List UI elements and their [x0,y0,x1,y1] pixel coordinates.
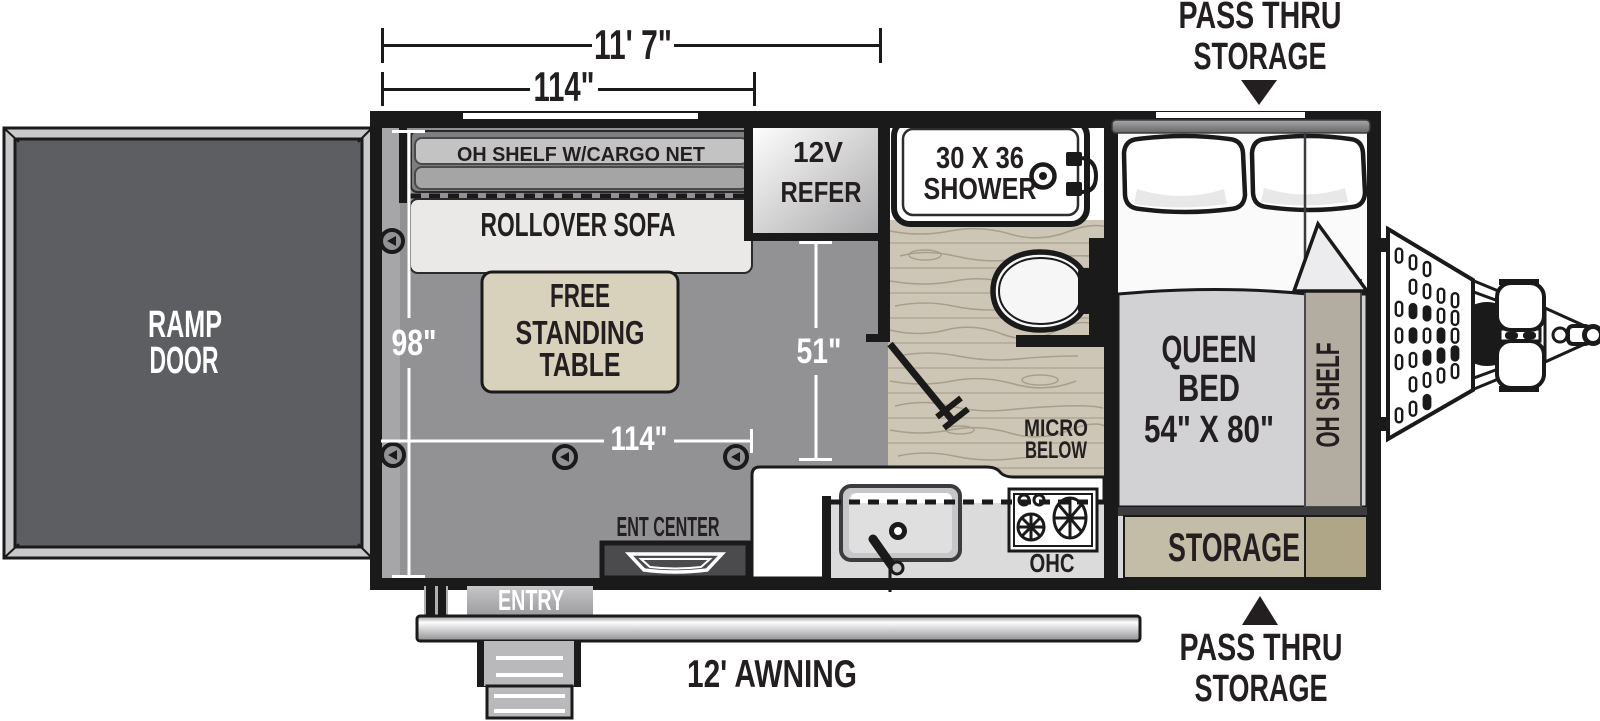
svg-text:BELOW: BELOW [1025,437,1087,464]
svg-text:FREE: FREE [550,277,610,314]
svg-text:SHOWER: SHOWER [924,171,1037,206]
svg-text:TABLE: TABLE [540,346,621,383]
svg-text:OH SHELF W/CARGO NET: OH SHELF W/CARGO NET [457,144,705,166]
svg-text:ENTRY: ENTRY [498,585,564,617]
svg-text:DOOR: DOOR [150,340,219,382]
svg-text:PASS THRU: PASS THRU [1179,0,1342,37]
svg-text:114": 114" [534,63,595,110]
svg-text:ENT CENTER: ENT CENTER [617,511,720,542]
svg-text:STORAGE: STORAGE [1168,526,1300,570]
svg-text:QUEEN: QUEEN [1162,329,1257,371]
svg-text:ROLLOVER SOFA: ROLLOVER SOFA [481,206,676,243]
svg-text:98": 98" [392,322,437,363]
svg-text:51": 51" [797,332,842,371]
svg-text:30 X 36: 30 X 36 [936,140,1024,175]
svg-text:11' 7": 11' 7" [594,21,672,68]
svg-text:12' AWNING: 12' AWNING [687,653,857,696]
svg-text:12V: 12V [793,137,844,169]
svg-text:BED: BED [1178,368,1240,410]
svg-text:STORAGE: STORAGE [1194,36,1327,78]
svg-text:54" X 80": 54" X 80" [1144,409,1274,451]
svg-text:OH SHELF: OH SHELF [1310,343,1346,448]
svg-text:STORAGE: STORAGE [1195,668,1328,710]
svg-text:PASS THRU: PASS THRU [1180,627,1343,669]
svg-text:REFER: REFER [781,177,862,209]
svg-text:OHC: OHC [1030,548,1075,578]
svg-text:114": 114" [611,420,668,458]
